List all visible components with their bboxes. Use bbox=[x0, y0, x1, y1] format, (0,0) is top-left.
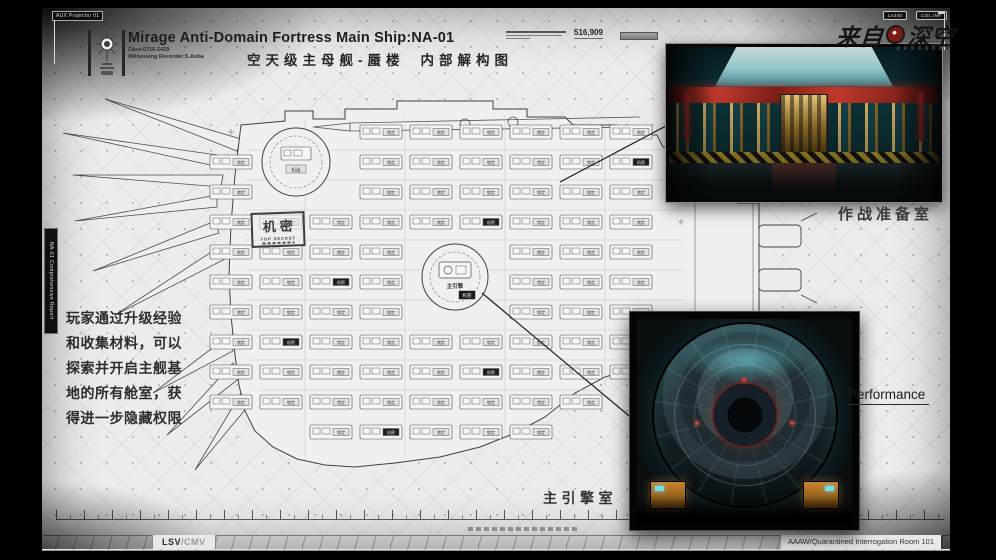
case-number: Case:0716-1429 bbox=[128, 47, 169, 53]
room-module: 锁定 bbox=[260, 275, 302, 289]
module-secret-label: 机密 bbox=[287, 339, 295, 345]
room-module: 锁定 bbox=[210, 395, 252, 409]
room-module: 锁定 bbox=[610, 185, 652, 199]
micro-info-block bbox=[506, 31, 566, 41]
top-secret-stamp: 机密 TOP SECRET bbox=[250, 211, 305, 248]
fore-section-label: 机组 bbox=[292, 167, 301, 174]
room-module: 锁定 bbox=[210, 185, 252, 199]
room-module: 锁定 bbox=[460, 155, 502, 169]
war-room-photo bbox=[666, 44, 942, 202]
room-module: 锁定 bbox=[560, 155, 602, 169]
room-module: 锁定 bbox=[360, 395, 402, 409]
module-lock-label: 锁定 bbox=[387, 399, 395, 405]
note-line: 和收集材料，可以 bbox=[66, 331, 182, 356]
module-secret-label: 机密 bbox=[487, 219, 495, 225]
room-module: 锁定 bbox=[510, 425, 552, 439]
stamp-en-text: TOP SECRET bbox=[255, 235, 301, 242]
room-module: 锁定 bbox=[560, 305, 602, 319]
room-module: 锁定 bbox=[410, 155, 452, 169]
room-module: 锁定 bbox=[360, 245, 402, 259]
module-lock-label: 锁定 bbox=[487, 339, 495, 345]
module-lock-label: 锁定 bbox=[437, 339, 445, 345]
module-lock-label: 锁定 bbox=[337, 399, 345, 405]
room-module: 锁定 bbox=[360, 275, 402, 289]
module-lock-label: 锁定 bbox=[587, 159, 595, 165]
module-lock-label: 锁定 bbox=[387, 129, 395, 135]
room-module: 锁定 bbox=[510, 365, 552, 379]
title-divider-bar bbox=[122, 30, 125, 76]
module-lock-label: 锁定 bbox=[487, 159, 495, 165]
module-lock-label: 锁定 bbox=[237, 339, 245, 345]
module-lock-label: 锁定 bbox=[387, 369, 395, 375]
module-lock-label: 锁定 bbox=[537, 399, 545, 405]
room-module: 锁定 bbox=[560, 395, 602, 409]
module-lock-label: 锁定 bbox=[537, 249, 545, 255]
module-lock-label: 锁定 bbox=[537, 219, 545, 225]
room-module: 锁定 bbox=[460, 425, 502, 439]
main-engine-label: 主引擎 bbox=[447, 282, 464, 290]
room-module: 锁定 bbox=[410, 395, 452, 409]
module-lock-label: 锁定 bbox=[637, 129, 645, 135]
module-lock-label: 锁定 bbox=[487, 129, 495, 135]
module-lock-label: 锁定 bbox=[287, 279, 295, 285]
module-lock-label: 锁定 bbox=[537, 309, 545, 315]
module-lock-label: 锁定 bbox=[337, 219, 345, 225]
room-module: 机密 bbox=[460, 215, 502, 229]
room-module: 锁定 bbox=[510, 125, 552, 139]
module-lock-label: 锁定 bbox=[587, 279, 595, 285]
room-module: 机密 bbox=[460, 365, 502, 379]
aux-projector-tag: AUX Projector 01 bbox=[52, 11, 103, 21]
note-line: 玩家通过升级经验 bbox=[66, 306, 182, 331]
room-module: 锁定 bbox=[560, 215, 602, 229]
console-screen bbox=[655, 486, 664, 491]
room-module: 锁定 bbox=[210, 155, 252, 169]
module-lock-label: 锁定 bbox=[437, 219, 445, 225]
note-line: 得进一步隐藏权限 bbox=[66, 406, 182, 431]
module-lock-label: 锁定 bbox=[337, 369, 345, 375]
note-line: 地的所有舱室，获 bbox=[66, 381, 182, 406]
serial-decor-bar bbox=[620, 32, 658, 40]
module-lock-label: 锁定 bbox=[587, 309, 595, 315]
module-lock-label: 锁定 bbox=[537, 369, 545, 375]
room-module: 锁定 bbox=[510, 185, 552, 199]
room-module: 锁定 bbox=[510, 215, 552, 229]
engine-top-glow bbox=[683, 337, 807, 383]
room-module: 锁定 bbox=[360, 155, 402, 169]
module-lock-label: 锁定 bbox=[387, 339, 395, 345]
module-lock-label: 锁定 bbox=[437, 159, 445, 165]
room-module: 锁定 bbox=[210, 245, 252, 259]
engine-red-light bbox=[790, 421, 794, 425]
subtitle-part-1: 空天级主母舰-蜃楼 bbox=[247, 53, 405, 68]
logo-emblem-icon bbox=[885, 25, 905, 44]
module-lock-label: 锁定 bbox=[537, 189, 545, 195]
room-module: 锁定 bbox=[610, 245, 652, 259]
module-lock-label: 锁定 bbox=[537, 279, 545, 285]
module-lock-label: 锁定 bbox=[237, 309, 245, 315]
room-module: 锁定 bbox=[410, 365, 452, 379]
room-module: 锁定 bbox=[360, 185, 402, 199]
room-module: 锁定 bbox=[410, 335, 452, 349]
module-lock-label: 锁定 bbox=[637, 249, 645, 255]
recorder-credit: Witnessing Recorder:S.Aoba bbox=[128, 54, 204, 60]
room-module: 锁定 bbox=[310, 245, 352, 259]
module-lock-label: 锁定 bbox=[237, 399, 245, 405]
room-module: 锁定 bbox=[560, 125, 602, 139]
serial-number: 516,909 bbox=[574, 28, 603, 39]
module-lock-label: 锁定 bbox=[587, 129, 595, 135]
footer-left-code-sub: /CMV bbox=[181, 537, 206, 547]
room-module: 锁定 bbox=[460, 125, 502, 139]
room-module: 锁定 bbox=[610, 125, 652, 139]
room-module: 锁定 bbox=[360, 365, 402, 379]
room-module: 锁定 bbox=[560, 275, 602, 289]
room-module: 锁定 bbox=[310, 335, 352, 349]
room-module: 机密 bbox=[610, 155, 652, 169]
module-lock-label: 锁定 bbox=[437, 399, 445, 405]
room-module: 锁定 bbox=[360, 305, 402, 319]
module-lock-label: 锁定 bbox=[387, 159, 395, 165]
room-module: 锁定 bbox=[210, 215, 252, 229]
war-room-label: 作战准备室 bbox=[838, 203, 933, 224]
room-module: 锁定 bbox=[610, 215, 652, 229]
module-lock-label: 锁定 bbox=[587, 399, 595, 405]
room-module: 锁定 bbox=[510, 245, 552, 259]
module-lock-label: 锁定 bbox=[587, 339, 595, 345]
room-module: 锁定 bbox=[360, 215, 402, 229]
title-divider-bar bbox=[88, 30, 91, 76]
margin-guide-line bbox=[54, 20, 55, 64]
module-lock-label: 锁定 bbox=[437, 189, 445, 195]
room-module: 锁定 bbox=[310, 395, 352, 409]
room-module: 机密 bbox=[310, 275, 352, 289]
room-module: 锁定 bbox=[310, 215, 352, 229]
main-engine-room-label: 主引擎室 bbox=[543, 488, 617, 508]
room-module: 锁定 bbox=[560, 245, 602, 259]
stamp-cn-text: 机密 bbox=[255, 215, 302, 236]
module-lock-label: 锁定 bbox=[537, 339, 545, 345]
module-secret-label: 机密 bbox=[387, 429, 395, 435]
module-lock-label: 锁定 bbox=[287, 399, 295, 405]
room-module: 锁定 bbox=[560, 335, 602, 349]
module-lock-label: 锁定 bbox=[237, 369, 245, 375]
room-module: 机密 bbox=[260, 335, 302, 349]
side-report-strip: NA-01 Comprehensive Report bbox=[44, 228, 58, 334]
module-secret-label: 机密 bbox=[637, 159, 645, 165]
module-lock-label: 锁定 bbox=[387, 279, 395, 285]
module-lock-label: 锁定 bbox=[587, 219, 595, 225]
room-module: 锁定 bbox=[410, 125, 452, 139]
module-lock-label: 锁定 bbox=[237, 189, 245, 195]
note-line: 探索并开启主舰基 bbox=[66, 356, 182, 381]
module-lock-label: 锁定 bbox=[337, 309, 345, 315]
room-module: 锁定 bbox=[560, 185, 602, 199]
room-module: 锁定 bbox=[210, 365, 252, 379]
module-lock-label: 锁定 bbox=[487, 399, 495, 405]
engine-core bbox=[712, 382, 778, 448]
room-module: 锁定 bbox=[560, 365, 602, 379]
footer-left-code: LSV/CMV bbox=[152, 535, 216, 549]
main-engine-circle: 主引擎 机密 bbox=[422, 244, 488, 310]
module-lock-label: 锁定 bbox=[437, 129, 445, 135]
console-screen bbox=[825, 486, 834, 491]
module-lock-label: 锁定 bbox=[637, 219, 645, 225]
module-secret-label: 机密 bbox=[487, 369, 495, 375]
module-lock-label: 锁定 bbox=[337, 339, 345, 345]
room-module: 锁定 bbox=[310, 365, 352, 379]
room-module: 锁定 bbox=[210, 305, 252, 319]
room-module: 锁定 bbox=[210, 335, 252, 349]
module-lock-label: 锁定 bbox=[587, 249, 595, 255]
room-module: 锁定 bbox=[210, 275, 252, 289]
module-lock-label: 锁定 bbox=[637, 279, 645, 285]
module-lock-label: 锁定 bbox=[537, 129, 545, 135]
engine-room-floor bbox=[637, 496, 852, 523]
module-lock-label: 锁定 bbox=[437, 429, 445, 435]
room-module: 锁定 bbox=[310, 425, 352, 439]
module-lock-label: 锁定 bbox=[287, 369, 295, 375]
module-lock-label: 锁定 bbox=[587, 189, 595, 195]
room-module: 锁定 bbox=[510, 155, 552, 169]
module-lock-label: 锁定 bbox=[387, 219, 395, 225]
module-lock-label: 锁定 bbox=[387, 249, 395, 255]
war-room-shading bbox=[669, 47, 939, 199]
footer-left-code-main: LSV bbox=[162, 537, 181, 547]
module-lock-label: 锁定 bbox=[537, 159, 545, 165]
module-secret-label: 机密 bbox=[337, 279, 345, 285]
module-lock-label: 锁定 bbox=[387, 189, 395, 195]
secret-room-tag: 机密 bbox=[463, 292, 472, 299]
projector-screen: 机组 主引擎 机密 锁定锁定锁定锁定锁定锁定锁定锁定锁定锁定锁定锁定机密锁定锁定… bbox=[0, 0, 996, 560]
footer-right-code: AAAW/Quarantined Interrogation Room 101 bbox=[781, 535, 943, 549]
room-module: 锁定 bbox=[610, 275, 652, 289]
room-module: 锁定 bbox=[260, 395, 302, 409]
fore-section-circle: 机组 bbox=[262, 128, 330, 196]
room-module: 锁定 bbox=[460, 395, 502, 409]
module-lock-label: 锁定 bbox=[637, 189, 645, 195]
subtitle-part-2: 内部解构图 bbox=[421, 53, 514, 68]
room-module: 机密 bbox=[360, 425, 402, 439]
room-module: 锁定 bbox=[360, 125, 402, 139]
module-lock-label: 锁定 bbox=[237, 279, 245, 285]
module-lock-label: 锁定 bbox=[237, 249, 245, 255]
module-lock-label: 锁定 bbox=[537, 429, 545, 435]
micro-caption-line bbox=[468, 527, 578, 531]
logo-tick-marks bbox=[897, 46, 953, 50]
room-module: 锁定 bbox=[260, 305, 302, 319]
module-lock-label: 锁定 bbox=[437, 369, 445, 375]
gameplay-notes: 玩家通过升级经验 和收集材料，可以 探索并开启主舰基 地的所有舱室，获 得进一步… bbox=[66, 306, 182, 431]
room-module: 锁定 bbox=[510, 305, 552, 319]
engine-room-photo bbox=[630, 312, 859, 530]
room-module: 锁定 bbox=[510, 275, 552, 289]
room-module: 锁定 bbox=[510, 395, 552, 409]
room-module: 锁定 bbox=[410, 425, 452, 439]
module-lock-label: 锁定 bbox=[487, 429, 495, 435]
room-module: 锁定 bbox=[260, 365, 302, 379]
module-lock-label: 锁定 bbox=[237, 159, 245, 165]
room-module: 锁定 bbox=[410, 215, 452, 229]
room-module: 锁定 bbox=[310, 305, 352, 319]
module-lock-label: 锁定 bbox=[487, 189, 495, 195]
module-lock-label: 锁定 bbox=[287, 309, 295, 315]
room-module: 锁定 bbox=[460, 335, 502, 349]
module-lock-label: 锁定 bbox=[237, 219, 245, 225]
logo-text-left: 来自 bbox=[835, 24, 885, 50]
room-module: 锁定 bbox=[460, 185, 502, 199]
stamp-sub-line bbox=[262, 241, 294, 244]
performance-label: Performance bbox=[848, 387, 929, 405]
side-report-strip-label: NA-01 Comprehensive Report bbox=[48, 242, 54, 319]
module-lock-label: 锁定 bbox=[337, 249, 345, 255]
module-lock-label: 锁定 bbox=[337, 429, 345, 435]
fleet-emblem-icon bbox=[94, 28, 120, 78]
room-module: 锁定 bbox=[360, 335, 402, 349]
module-lock-label: 锁定 bbox=[287, 249, 295, 255]
module-lock-label: 锁定 bbox=[587, 369, 595, 375]
page-subtitle: 空天级主母舰-蜃楼内部解构图 bbox=[247, 49, 513, 69]
room-module: 锁定 bbox=[510, 335, 552, 349]
page-title: Mirage Anti-Domain Fortress Main Ship:NA… bbox=[128, 30, 454, 46]
module-lock-label: 锁定 bbox=[387, 309, 395, 315]
room-module: 锁定 bbox=[410, 185, 452, 199]
